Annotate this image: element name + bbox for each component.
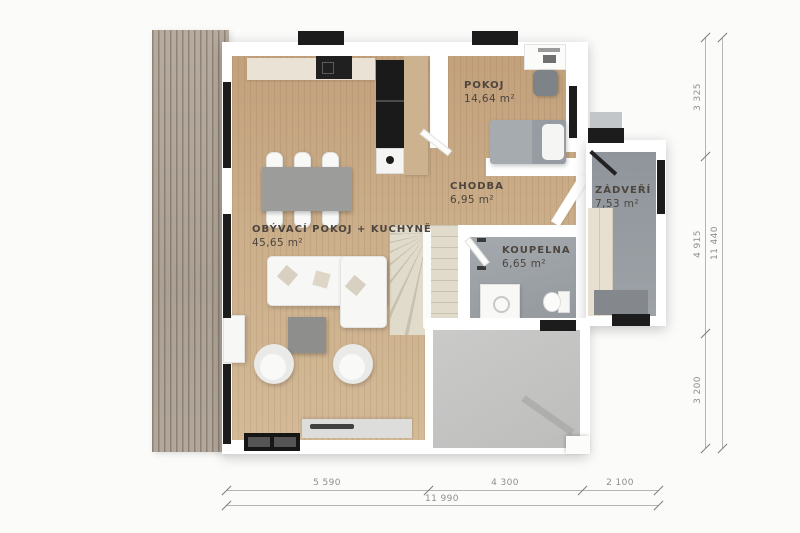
kitchen-counter <box>247 58 375 80</box>
wall-bathroom-top <box>458 225 576 237</box>
patio <box>433 330 580 448</box>
floor-plan-canvas: POKOJ 14,64 m² CHODBA 6,95 m² ZÁDVEŘÍ 7,… <box>0 0 800 533</box>
dimension-label: 2 100 <box>606 478 634 488</box>
shower-drain-icon <box>493 296 510 313</box>
coffee-table <box>288 317 326 353</box>
room-label-obyvaci: OBÝVACÍ POKOJ + KUCHYNĚ 45,65 m² <box>252 224 432 250</box>
armchair-seat <box>260 354 286 380</box>
dishwasher-knob-icon <box>386 156 394 164</box>
armchair-seat <box>339 354 365 380</box>
floor-window-pane <box>248 437 270 447</box>
dimension-line-right-segments <box>705 37 706 448</box>
room-area: 14,64 m² <box>464 94 515 106</box>
doormat <box>594 290 648 315</box>
room-label-chodba: CHODBA 6,95 m² <box>450 181 504 207</box>
room-label-pokoj: POKOJ 14,64 m² <box>464 80 515 106</box>
dimension-label: 5 590 <box>313 478 341 488</box>
window <box>612 314 650 326</box>
dimension-label: 3 200 <box>693 376 703 404</box>
bed-pillow <box>542 124 564 160</box>
room-area: 45,65 m² <box>252 238 432 250</box>
window <box>223 82 231 168</box>
dimension-label-total: 11 440 <box>710 226 720 260</box>
patio-post <box>566 436 590 454</box>
tv <box>310 424 354 429</box>
window <box>569 86 577 138</box>
room-name: ZÁDVEŘÍ <box>595 185 651 196</box>
dimension-label: 4 915 <box>693 230 703 258</box>
sofa-chaise <box>340 256 387 328</box>
oven-column <box>376 60 404 148</box>
floor-window-pane <box>274 437 296 447</box>
desk-chair <box>533 70 558 96</box>
dimension-label: 3 325 <box>693 83 703 111</box>
room-name: KOUPELNA <box>502 245 571 256</box>
dimension-line-right-total <box>722 37 723 448</box>
towel-radiator <box>477 266 486 270</box>
sideboard <box>223 315 245 363</box>
window <box>472 31 518 45</box>
entry-step <box>590 112 622 129</box>
dining-table <box>262 167 352 211</box>
window <box>298 31 344 45</box>
wood-deck <box>152 30 229 452</box>
dimension-line-bottom-total <box>226 505 658 506</box>
desk-shelf <box>538 48 560 52</box>
toilet <box>543 292 561 312</box>
dimension-label-total: 11 990 <box>425 494 459 504</box>
dimension-line-bottom-segments <box>226 490 658 491</box>
kitchen-tall-cabinet <box>404 56 428 175</box>
cooktop-burner-icon <box>322 62 334 74</box>
window <box>223 214 231 318</box>
staircase-straight-flight <box>428 225 458 325</box>
window <box>540 320 576 331</box>
room-name: POKOJ <box>464 80 515 91</box>
room-label-koupelna: KOUPELNA 6,65 m² <box>502 245 571 271</box>
room-area: 7,53 m² <box>595 199 651 211</box>
room-name: OBÝVACÍ POKOJ + KUCHYNĚ <box>252 224 432 235</box>
window <box>657 160 665 214</box>
entry-door-threshold <box>588 128 624 143</box>
dimension-label: 4 300 <box>491 478 519 488</box>
oven-divider <box>376 100 404 102</box>
room-name: CHODBA <box>450 181 504 192</box>
room-area: 6,65 m² <box>502 259 571 271</box>
window <box>223 364 231 444</box>
room-label-zadveri: ZÁDVEŘÍ 7,53 m² <box>595 185 651 211</box>
laptop-icon <box>543 55 556 63</box>
towel-radiator <box>477 238 486 242</box>
room-area: 6,95 m² <box>450 195 504 207</box>
wall-kitchen-bedroom <box>430 56 448 148</box>
